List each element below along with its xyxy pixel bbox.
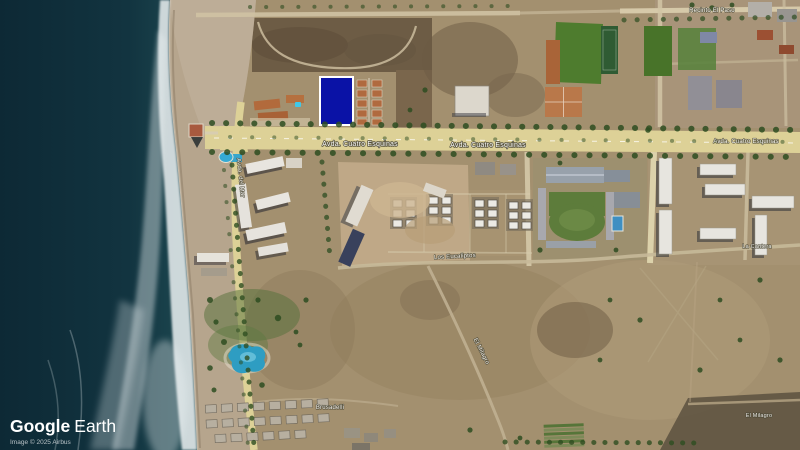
google-earth-logo: GoogleEarth [10,416,116,436]
road-label: Avda. Cuatro Esquinas [713,139,778,145]
soccer-field [554,22,603,84]
google-logo-text: Google [10,416,71,436]
road-label: El Milagro [746,413,772,419]
road-label: Recinto El Paso [689,8,735,14]
google-earth-window: Avda. Cuatro Esquinas Avda. Cuatro Esqui… [0,0,800,450]
road-label: Avda. Cuatro Esquinas [322,141,398,148]
earth-logo-text: Earth [74,416,116,436]
ocean-region [0,0,197,450]
clubhouse [546,40,560,84]
swimming-pool [612,216,623,231]
road-label: La Cantera [742,244,772,250]
imagery-credit: Image © 2025 Airbus [10,438,72,446]
selected-parcel-highlight[interactable] [320,77,353,125]
road-label: Brusadelli [316,405,344,411]
soccer-field [644,26,672,76]
tennis-court-green [601,26,618,74]
swimming-pool [295,102,301,107]
road-label: Avda. Cuatro Esquinas [450,142,526,149]
white-building [455,86,489,116]
map-canvas[interactable]: Avda. Cuatro Esquinas Avda. Cuatro Esqui… [0,0,800,450]
